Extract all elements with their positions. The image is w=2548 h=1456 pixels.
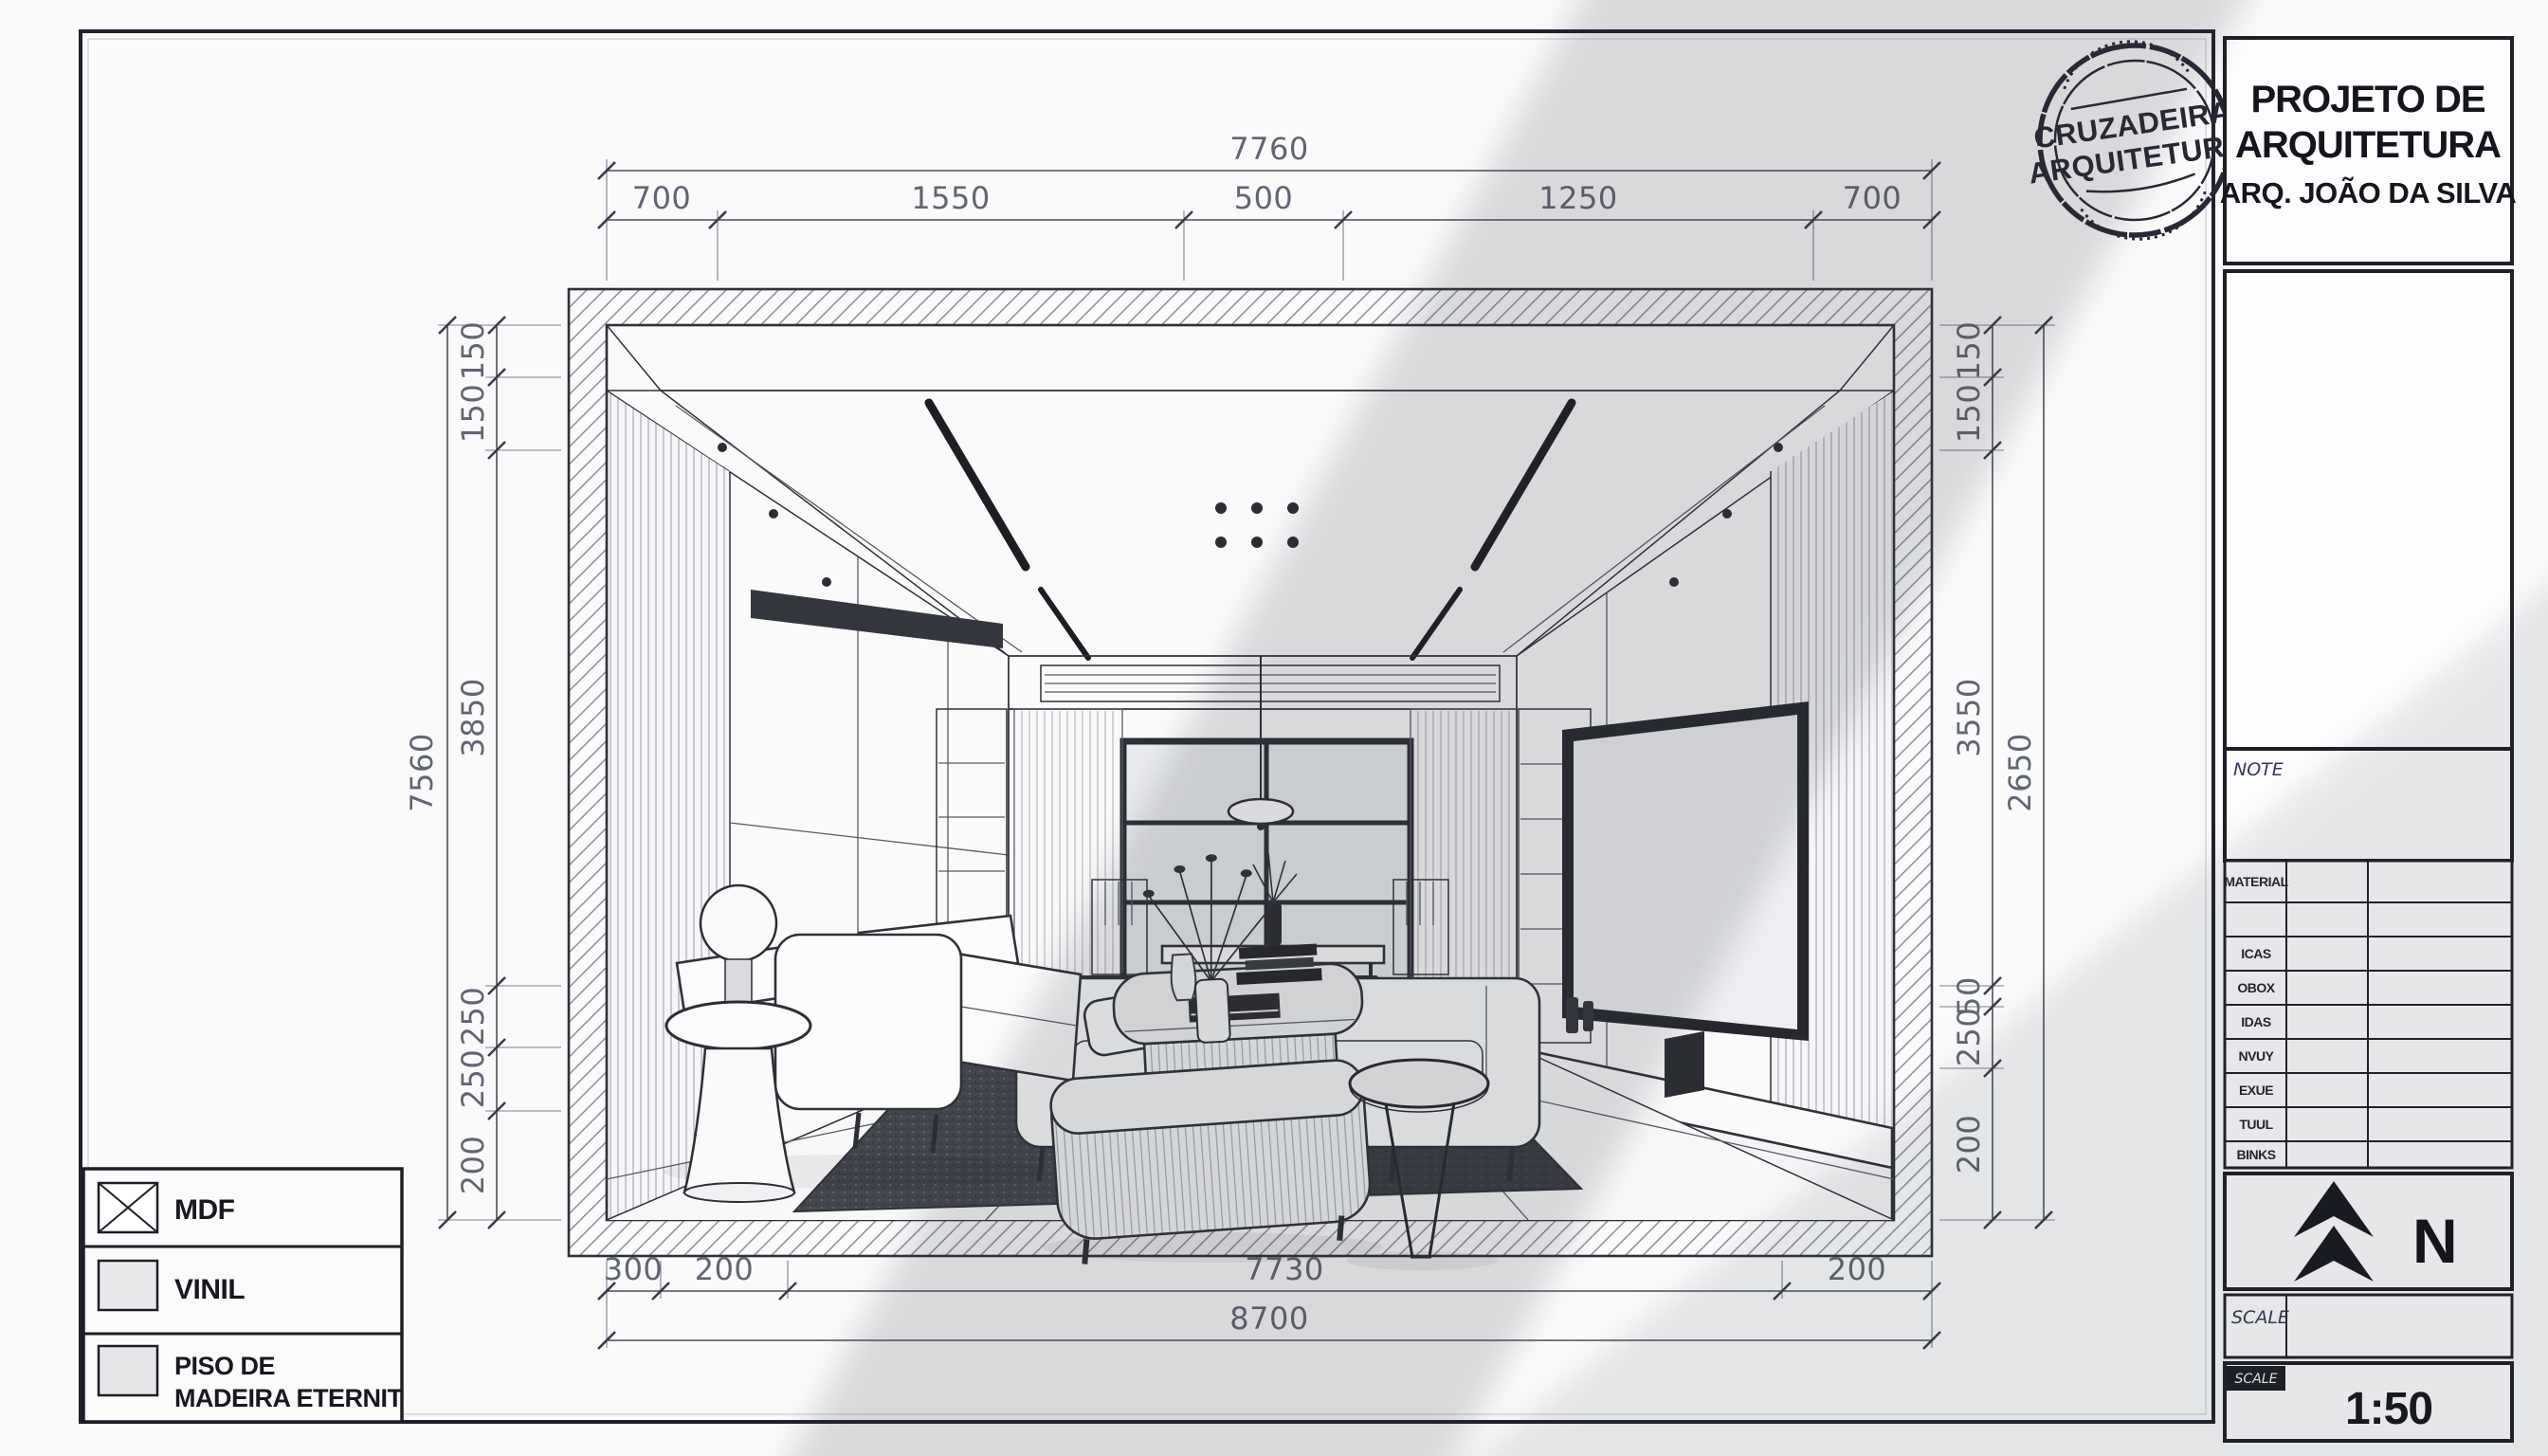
dim-left-2: 150 [455,384,491,444]
piso-swatch-icon [99,1346,157,1395]
dim-left-5: 250 [455,1049,491,1109]
dim-top-2: 1550 [911,180,990,216]
legend-label-piso-1: PISO DE [174,1352,275,1380]
sphere-lamp [701,885,776,961]
legend-label-piso-2: MADEIRA ETERNIT [174,1384,404,1412]
dim-left-6: 200 [455,1136,491,1195]
dim-left-1: 150 [455,321,491,381]
dim-left-3: 3850 [455,678,491,756]
architecture-sheet: 7760 700 1550 500 1250 700 300 200 7730 [0,0,2548,1456]
dim-top-overall: 7760 [1229,131,1308,167]
note-label: NOTE [2233,759,2284,780]
dim-right-3: 3550 [1951,678,1987,756]
project-title-line2: ARQUITETURA [2235,124,2501,166]
dim-right-overall: 2650 [2002,733,2038,811]
dim-top-3: 500 [1234,180,1294,216]
dim-bottom-1: 300 [604,1251,664,1287]
dim-left-overall: 7560 [404,733,440,811]
legend-label-vinil: VINIL [174,1274,245,1305]
dim-top-1: 700 [632,180,692,216]
dim-bottom-2: 200 [695,1251,755,1287]
vinil-swatch-icon [99,1261,157,1310]
legend-label-mdf: MDF [174,1194,235,1226]
architect-name: ARQ. JOÃO DA SILVA [2220,176,2517,209]
materials-legend: MDF VINIL PISO DE MADEIRA ETERNIT [83,1169,404,1422]
dim-left-4: 250 [455,987,491,1046]
project-title-line1: PROJETO DE [2250,79,2484,120]
